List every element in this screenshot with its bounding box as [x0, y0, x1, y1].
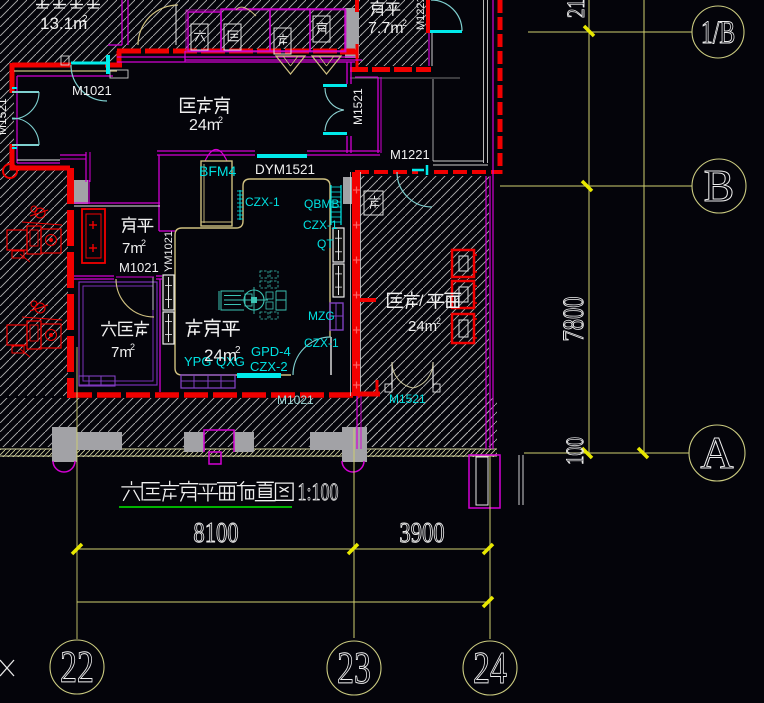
svg-text:13.1m: 13.1m — [40, 14, 87, 33]
svg-text:M1521: M1521 — [351, 88, 365, 125]
svg-text:1/B: 1/B — [701, 14, 735, 51]
svg-text:M1021: M1021 — [72, 83, 112, 98]
svg-text:B: B — [704, 160, 735, 211]
svg-text:2: 2 — [141, 238, 146, 248]
svg-text:7800: 7800 — [556, 297, 590, 342]
svg-text:2: 2 — [402, 18, 407, 28]
svg-text:2: 2 — [130, 342, 135, 352]
svg-text:QT: QT — [317, 237, 334, 251]
svg-text:CZX-1: CZX-1 — [245, 195, 280, 209]
svg-text:CZX-1: CZX-1 — [304, 336, 339, 350]
svg-text:7m: 7m — [111, 344, 132, 361]
svg-text:2: 2 — [218, 115, 223, 125]
svg-text:M1521: M1521 — [389, 392, 426, 406]
svg-text:1:100: 1:100 — [298, 478, 339, 506]
svg-text:/: / — [419, 293, 424, 310]
svg-text:M1021: M1021 — [277, 393, 314, 407]
svg-text:23: 23 — [337, 643, 371, 693]
svg-text:8100: 8100 — [193, 516, 238, 548]
svg-text:7m: 7m — [122, 240, 143, 257]
svg-text:3900: 3900 — [399, 516, 444, 548]
svg-text:DYM1521: DYM1521 — [255, 162, 315, 177]
svg-text:M1221: M1221 — [415, 0, 427, 30]
svg-text:24m: 24m — [408, 318, 437, 335]
svg-text:QBMB: QBMB — [304, 197, 339, 211]
svg-text:GPD-4: GPD-4 — [251, 344, 291, 359]
svg-text:7.7m: 7.7m — [368, 20, 404, 37]
svg-text:M1221: M1221 — [390, 147, 430, 162]
svg-text:100: 100 — [560, 437, 588, 465]
svg-text:M1521: M1521 — [0, 98, 9, 135]
svg-text:2: 2 — [82, 14, 88, 25]
svg-text:22: 22 — [60, 642, 94, 692]
svg-text:CZX-1: CZX-1 — [303, 218, 338, 232]
svg-text:MZG: MZG — [308, 309, 335, 323]
svg-text:2100: 2100 — [561, 0, 589, 18]
svg-text:24m: 24m — [204, 346, 237, 365]
svg-text:BFM4: BFM4 — [199, 163, 237, 179]
svg-text:24: 24 — [473, 643, 507, 693]
svg-text:A: A — [700, 427, 733, 478]
svg-text:YM1021: YM1021 — [163, 231, 175, 272]
svg-text:2: 2 — [436, 316, 441, 326]
svg-text:CZX-2: CZX-2 — [250, 359, 288, 374]
svg-text:M1021: M1021 — [119, 260, 159, 275]
svg-text:2: 2 — [235, 345, 241, 356]
svg-text:24m: 24m — [189, 117, 220, 134]
